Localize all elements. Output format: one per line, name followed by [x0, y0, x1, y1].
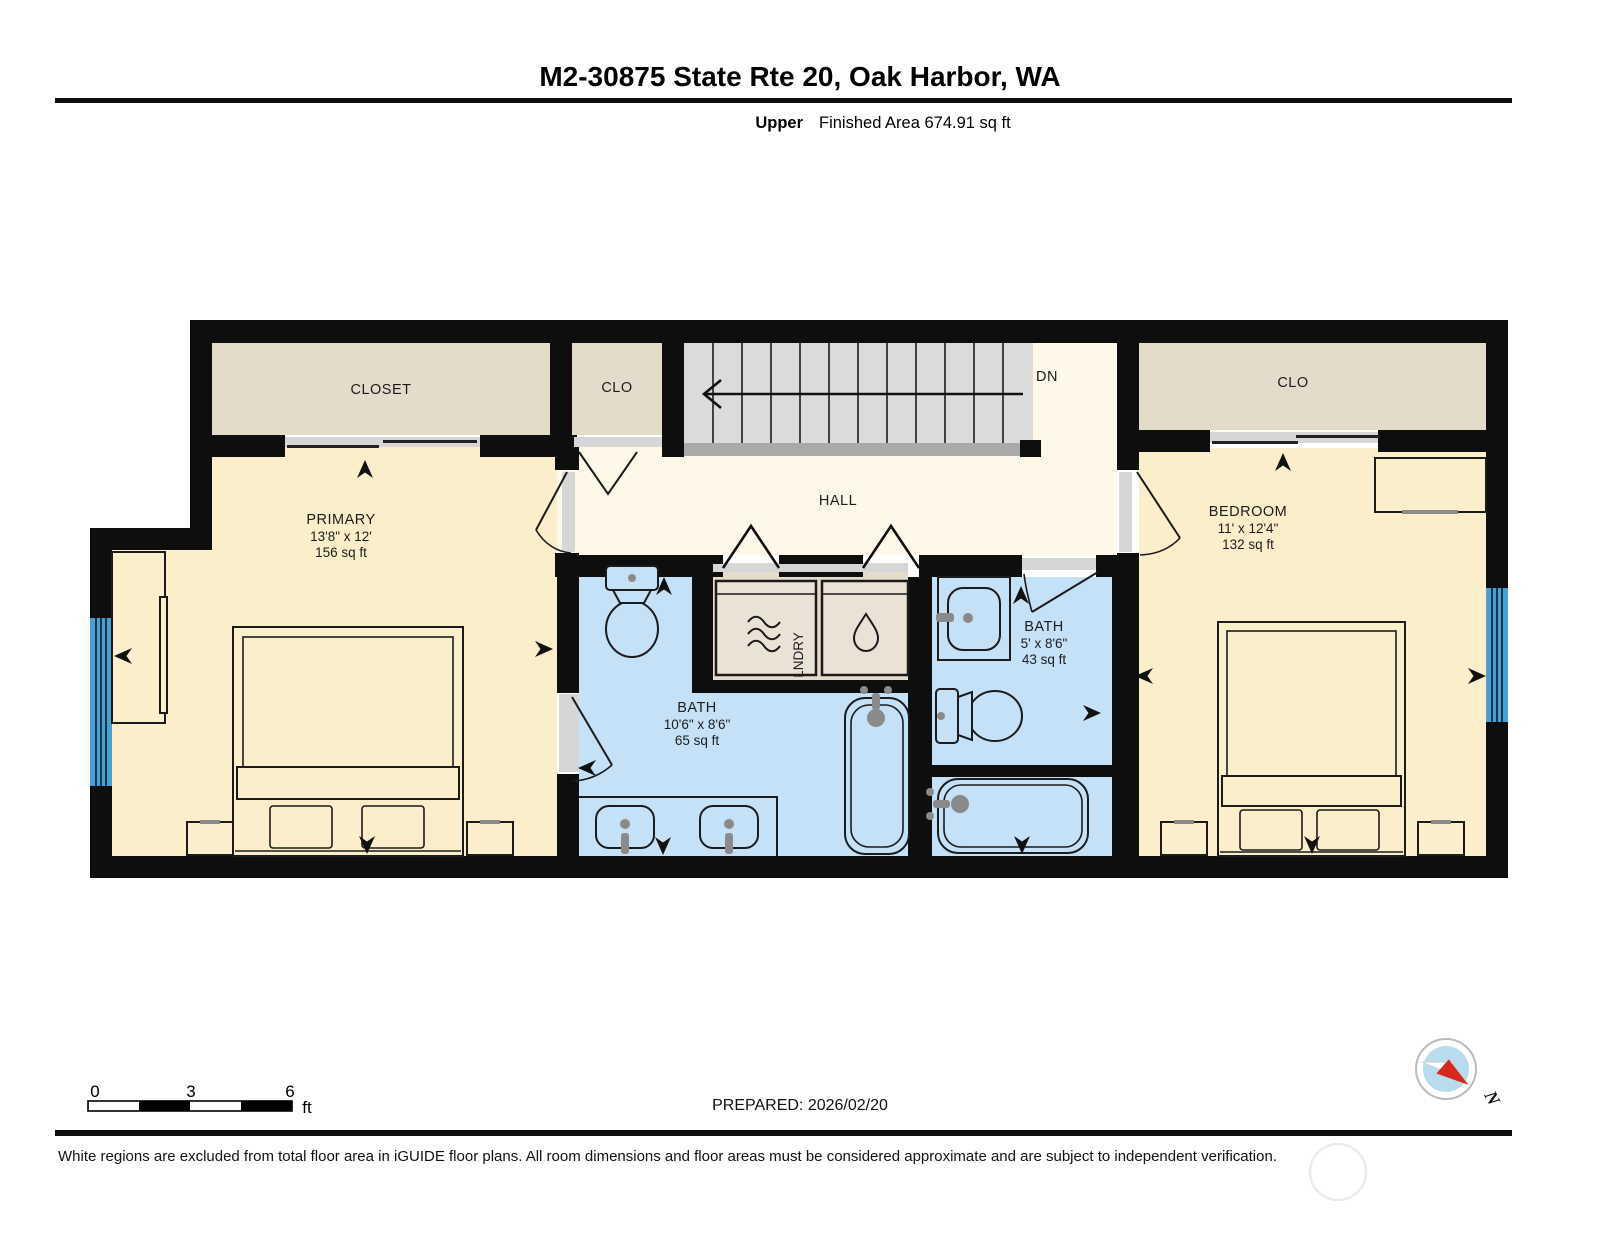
- nightstand: [467, 822, 513, 855]
- nightstand-handle: [480, 820, 500, 824]
- scale-tick-0: 0: [90, 1082, 99, 1101]
- bed-bedroom: [1218, 622, 1405, 856]
- floor-label: Upper: [755, 114, 803, 132]
- header: M2-30875 State Rte 20, Oak Harbor, WA Up…: [55, 61, 1512, 132]
- nightstand-handle: [200, 820, 220, 824]
- toilet-bath-main: [606, 566, 658, 657]
- laundry-sill: [713, 564, 908, 572]
- label-primary-area: 156 sq ft: [315, 545, 367, 560]
- label-bath-small-name: BATH: [1024, 619, 1064, 635]
- watermark-circle: [1310, 1144, 1366, 1200]
- label-primary-name: PRIMARY: [306, 512, 375, 528]
- clo-right-bypass-door: [1296, 435, 1380, 438]
- closet-left-bypass-door: [383, 440, 477, 443]
- label-clo-mid: CLO: [601, 380, 632, 396]
- footer: 0 3 6 ft PREPARED: 2026/02/20 N White re…: [55, 1039, 1512, 1200]
- scale-unit: ft: [302, 1098, 312, 1117]
- label-bedroom-dims: 11' x 12'4": [1218, 521, 1279, 536]
- label-primary-dims: 13'8" x 12': [310, 529, 372, 544]
- compass: N: [1416, 1039, 1505, 1109]
- scale-tick-3: 3: [186, 1082, 195, 1101]
- bathtub-main: [845, 686, 909, 854]
- dryer: [822, 581, 908, 675]
- label-stairs-dn: DN: [1036, 369, 1058, 385]
- label-clo-right: CLO: [1277, 375, 1308, 391]
- scale-tick-6: 6: [285, 1082, 294, 1101]
- window-right: [1486, 588, 1508, 722]
- stair-landing-strip: [684, 443, 1020, 456]
- footer-divider: [55, 1130, 1512, 1136]
- label-closet-left: CLOSET: [350, 382, 411, 398]
- prepared-date: PREPARED: 2026/02/20: [712, 1097, 888, 1114]
- bath-small-door-jamb: [1022, 558, 1096, 570]
- label-bath-main-area: 65 sq ft: [675, 733, 720, 748]
- clo-right-bypass-door: [1212, 441, 1298, 444]
- bed-primary: [233, 627, 463, 856]
- header-divider: [55, 98, 1512, 103]
- primary-door-jamb: [562, 472, 575, 552]
- window-left: [90, 618, 112, 786]
- label-bath-small-area: 43 sq ft: [1022, 652, 1067, 667]
- nightstand: [1418, 822, 1464, 855]
- label-hall: HALL: [819, 493, 857, 509]
- nightstand-handle: [1174, 820, 1194, 824]
- toilet-bath-small: [936, 689, 1022, 743]
- stair-landing-hall-floor: [1033, 343, 1117, 457]
- nightstand: [187, 822, 233, 855]
- floorplan-canvas: M2-30875 State Rte 20, Oak Harbor, WA Up…: [0, 0, 1600, 1236]
- stair-newel: [1020, 440, 1041, 457]
- label-laundry: LNDRY: [791, 632, 806, 678]
- finished-area-label: Finished Area 674.91 sq ft: [819, 114, 1011, 132]
- bathtub-small: [926, 779, 1088, 853]
- room-clo-right-floor: [1139, 343, 1486, 430]
- scale-bar: 0 3 6 ft: [88, 1082, 312, 1117]
- compass-north-label: N: [1480, 1087, 1505, 1110]
- desk: [1375, 458, 1486, 514]
- floorplan-page: M2-30875 State Rte 20, Oak Harbor, WA Up…: [0, 0, 1600, 1236]
- bedroom-door-jamb: [1119, 472, 1132, 552]
- page-title: M2-30875 State Rte 20, Oak Harbor, WA: [539, 61, 1060, 92]
- label-bath-small-dims: 5' x 8'6": [1021, 636, 1068, 651]
- closet-left-bypass-door: [287, 445, 379, 448]
- label-bath-main-name: BATH: [677, 700, 717, 716]
- wardrobe: [112, 552, 167, 723]
- label-bedroom-area: 132 sq ft: [1222, 537, 1274, 552]
- label-bedroom-name: BEDROOM: [1209, 504, 1287, 520]
- label-bath-main-dims: 10'6" x 8'6": [664, 717, 731, 732]
- nightstand: [1161, 822, 1207, 855]
- nightstand-handle: [1431, 820, 1451, 824]
- disclaimer-text: White regions are excluded from total fl…: [58, 1148, 1277, 1165]
- clo-mid-sill: [574, 437, 662, 447]
